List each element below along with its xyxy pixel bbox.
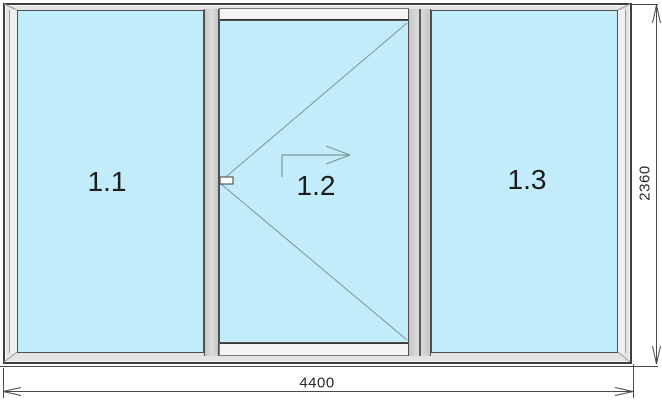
window-drawing-canvas: 1.1 1.2 1.3 <box>0 0 662 400</box>
mullion-left <box>204 9 219 356</box>
panel-label-2: 1.2 <box>297 170 336 202</box>
interlock-line <box>419 9 421 356</box>
height-dimension-label: 2360 <box>637 165 654 200</box>
mullion-right <box>408 9 431 356</box>
panel-label-3: 1.3 <box>508 164 547 196</box>
width-dimension-label: 4400 <box>299 375 334 392</box>
handle-icon <box>220 177 233 184</box>
sliding-sash-bottom-track <box>219 342 409 356</box>
panel-label-1: 1.1 <box>88 166 127 198</box>
